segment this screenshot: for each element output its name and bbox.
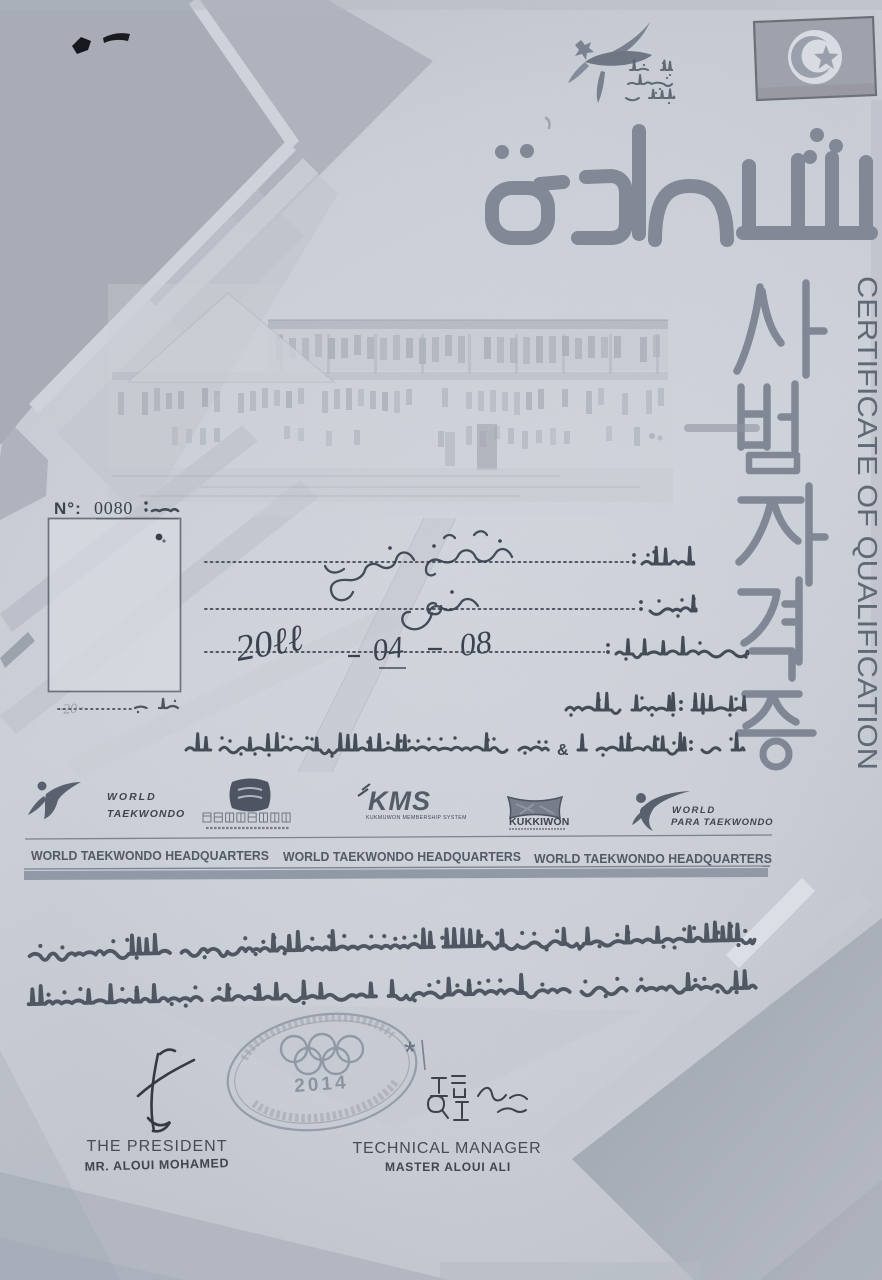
svg-text:MASTER ALOUI ALI: MASTER ALOUI ALI (385, 1160, 511, 1174)
svg-text:THE PRESIDENT: THE PRESIDENT (86, 1138, 227, 1155)
svg-text:KMS: KMS (368, 786, 431, 816)
svg-text:KUKKIWON: KUKKIWON (509, 816, 570, 828)
svg-text:04: 04 (370, 629, 406, 668)
svg-text:&: & (557, 742, 569, 759)
svg-text:·20··: ·20·· (59, 701, 84, 718)
svg-text:TECHNICAL MANAGER: TECHNICAL MANAGER (352, 1140, 541, 1157)
svg-text:WORLD TAEKWONDO HEADQUARTERS: WORLD TAEKWONDO HEADQUARTERS (31, 848, 269, 863)
svg-text:TAEKWONDO: TAEKWONDO (107, 808, 185, 820)
svg-text:PARA TAEKWONDO: PARA TAEKWONDO (671, 817, 773, 828)
svg-text:WORLD: WORLD (107, 791, 157, 803)
svg-text:N°:: N°: (54, 499, 82, 518)
svg-text:CERTIFICATE OF QUALIFICATION: CERTIFICATE OF QUALIFICATION (852, 276, 882, 770)
svg-text:KUKMUWON MEMBERSHIP SYSTEM: KUKMUWON MEMBERSHIP SYSTEM (366, 815, 467, 821)
svg-text:WORLD TAEKWONDO HEADQUARTERS: WORLD TAEKWONDO HEADQUARTERS (283, 849, 521, 864)
svg-text:WORLD: WORLD (672, 805, 716, 816)
svg-text:0080: 0080 (94, 498, 133, 518)
svg-text:WORLD TAEKWONDO HEADQUARTERS: WORLD TAEKWONDO HEADQUARTERS (534, 851, 772, 866)
svg-text:08: 08 (457, 623, 493, 663)
svg-text:*: * (404, 1036, 416, 1069)
svg-text:2014: 2014 (294, 1072, 350, 1097)
